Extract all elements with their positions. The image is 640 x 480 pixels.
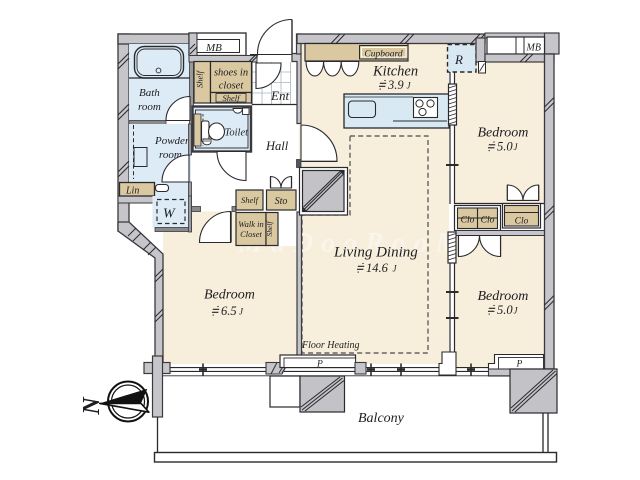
svg-text:Clo: Clo xyxy=(515,217,529,227)
svg-text:Walk in: Walk in xyxy=(238,219,263,229)
svg-text:Hall: Hall xyxy=(265,139,289,153)
svg-text:Floor Heating: Floor Heating xyxy=(301,340,360,351)
svg-text:Bath: Bath xyxy=(139,87,160,99)
svg-text:R: R xyxy=(454,52,463,67)
svg-text:3.9: 3.9 xyxy=(387,78,404,92)
svg-text:Clo: Clo xyxy=(481,216,495,226)
svg-text:shoes in: shoes in xyxy=(214,68,248,79)
svg-text:5.0: 5.0 xyxy=(497,303,513,317)
svg-text:Closet: Closet xyxy=(240,229,262,239)
svg-text:Toilet: Toilet xyxy=(225,128,250,139)
svg-text:MB: MB xyxy=(526,43,541,54)
svg-text:Ent: Ent xyxy=(270,88,289,103)
svg-text:Bedroom: Bedroom xyxy=(478,289,529,304)
svg-text:Shelf: Shelf xyxy=(195,69,205,88)
svg-text:Cupboard: Cupboard xyxy=(364,50,402,60)
svg-text:Powder: Powder xyxy=(154,135,190,147)
svg-text:5.0: 5.0 xyxy=(497,140,513,154)
svg-text:Clo: Clo xyxy=(461,216,475,226)
svg-text:closet: closet xyxy=(219,81,245,92)
svg-text:Living Dining: Living Dining xyxy=(333,245,418,261)
svg-text:Balcony: Balcony xyxy=(358,411,405,426)
svg-text:Lin: Lin xyxy=(125,186,139,197)
svg-text:6.5: 6.5 xyxy=(221,304,237,318)
svg-text:Shelf: Shelf xyxy=(223,93,242,103)
svg-text:Shelf: Shelf xyxy=(265,221,274,237)
svg-text:Sto: Sto xyxy=(275,196,288,207)
svg-text:Shelf: Shelf xyxy=(241,195,260,205)
svg-text:room: room xyxy=(138,101,161,113)
svg-text:Bedroom: Bedroom xyxy=(478,126,529,141)
svg-text:14.6: 14.6 xyxy=(366,261,389,275)
svg-text:W: W xyxy=(163,207,176,222)
svg-text:N: N xyxy=(79,396,105,416)
svg-text:Bedroom: Bedroom xyxy=(204,288,255,303)
svg-text:P: P xyxy=(516,360,523,370)
svg-text:MB: MB xyxy=(205,42,222,54)
